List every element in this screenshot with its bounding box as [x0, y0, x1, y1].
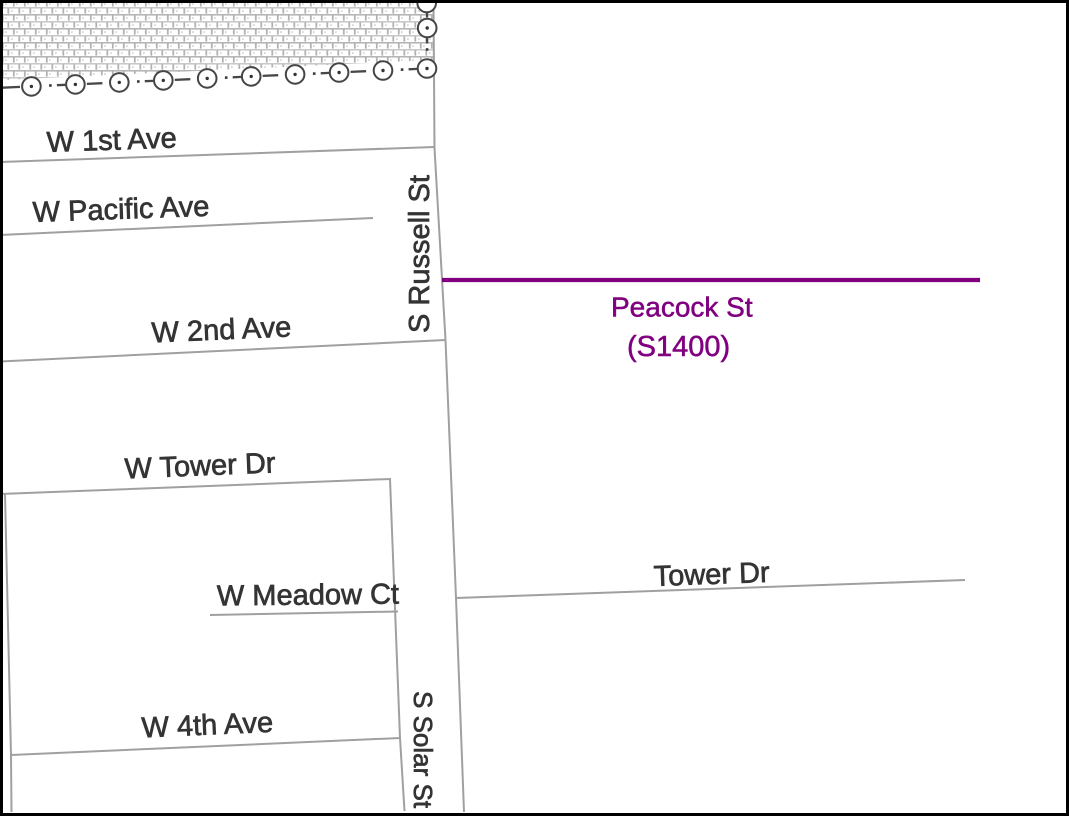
svg-text:W Pacific Ave: W Pacific Ave [32, 191, 210, 229]
svg-text:Tower Dr: Tower Dr [653, 557, 770, 593]
svg-text:W 2nd Ave: W 2nd Ave [151, 311, 292, 349]
svg-text:W Tower Dr: W Tower Dr [124, 447, 276, 485]
svg-text:W Meadow Ct: W Meadow Ct [217, 579, 399, 613]
svg-text:W 4th Ave: W 4th Ave [141, 707, 274, 745]
svg-text:W 1st Ave: W 1st Ave [46, 122, 177, 159]
svg-text:S Solar St: S Solar St [408, 691, 438, 809]
svg-text:Peacock St: Peacock St [611, 292, 753, 323]
svg-text:S Russell St: S Russell St [404, 175, 436, 333]
svg-text:(S1400): (S1400) [627, 331, 730, 363]
